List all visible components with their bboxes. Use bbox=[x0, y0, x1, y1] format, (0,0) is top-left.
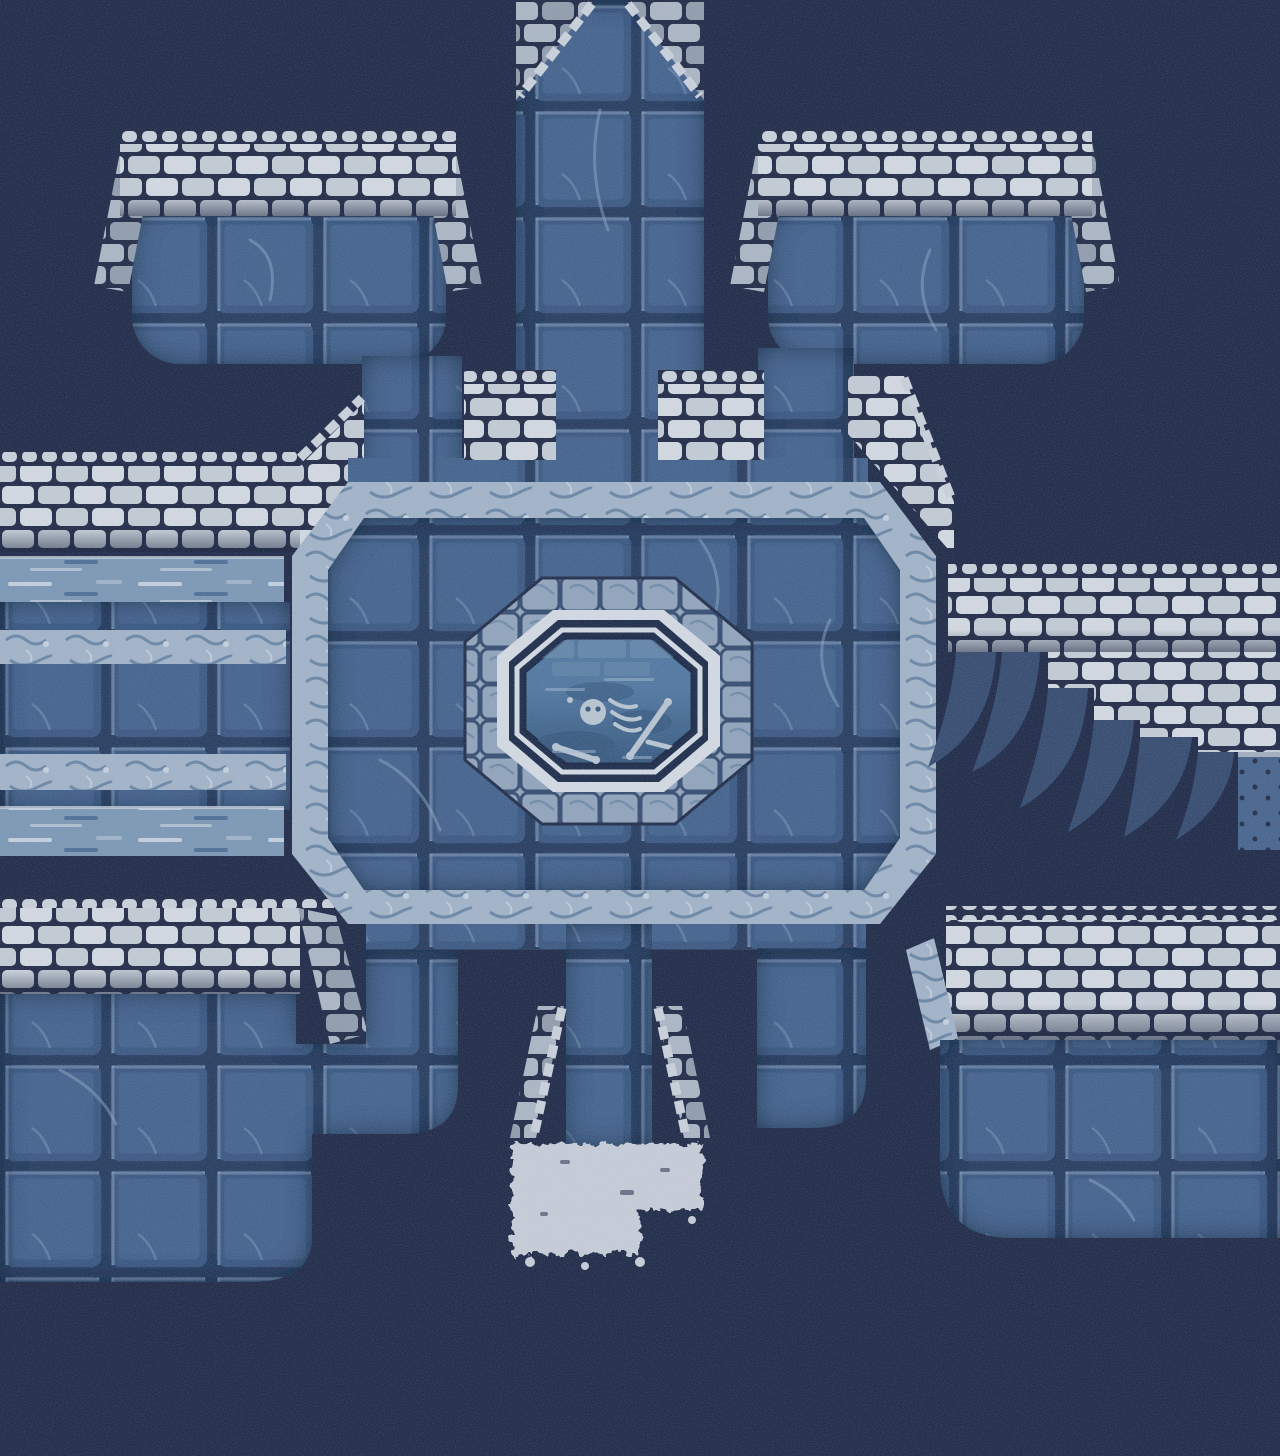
dungeon-map[interactable] bbox=[0, 0, 1280, 1456]
dungeon-scene bbox=[0, 0, 1280, 1456]
dither-noise-overlay bbox=[0, 0, 1280, 1456]
